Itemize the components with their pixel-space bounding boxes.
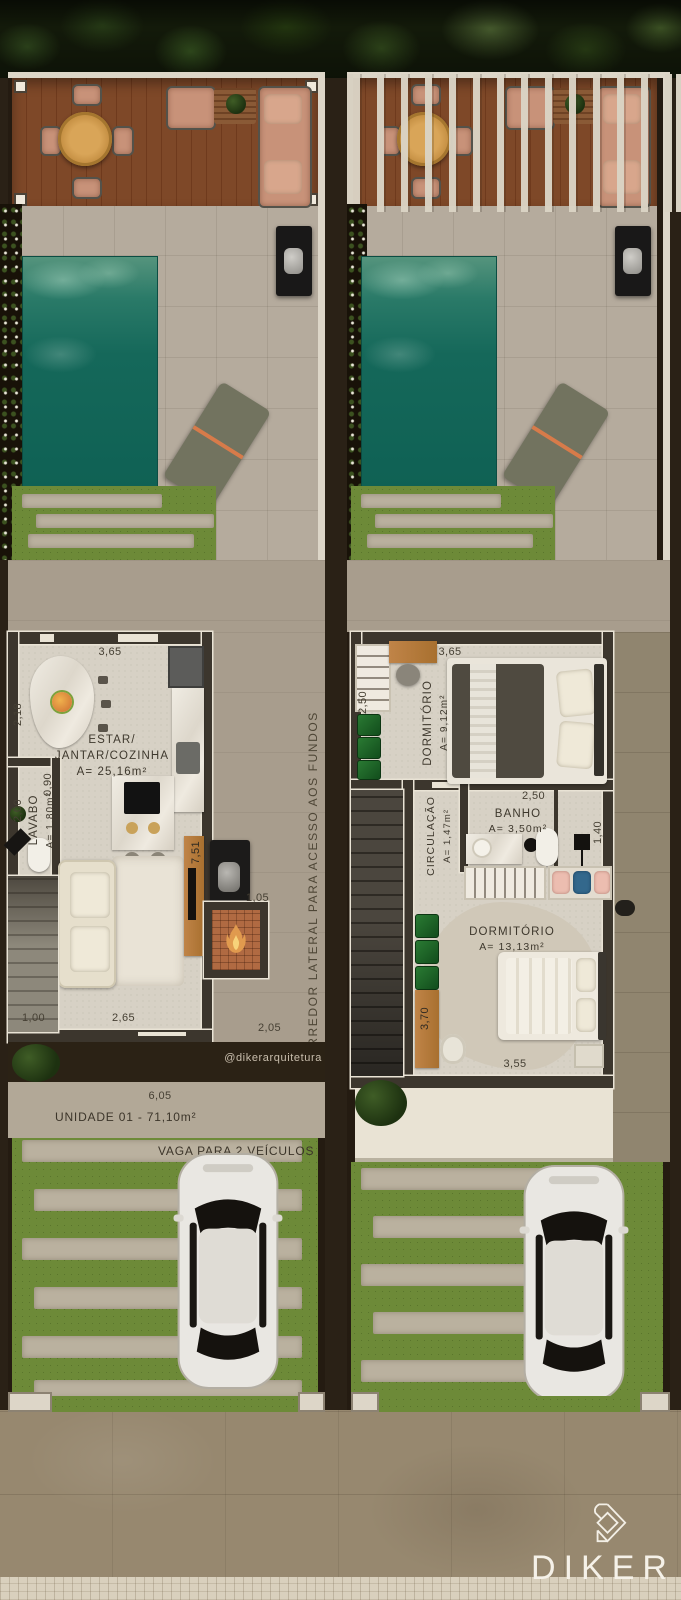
door-mat <box>615 900 635 916</box>
wardrobe-hangers <box>464 866 546 900</box>
unit-a-pool <box>22 256 158 490</box>
place-setting <box>148 822 160 834</box>
dim-bedroom2-bottom: 3,55 <box>485 1058 545 1070</box>
bedroom2-label: DORMITÓRIO A= 13,13m² <box>452 924 572 955</box>
bed-throw <box>470 664 496 778</box>
patio-chair <box>72 84 102 106</box>
tv-screen <box>188 868 196 920</box>
place-setting <box>126 822 138 834</box>
plant-box <box>415 914 439 938</box>
sofa-cushion <box>70 926 110 972</box>
room-area: A= 9,12m² <box>438 680 452 766</box>
room-name: DORMITÓRIO <box>452 924 572 940</box>
lawn-paver <box>22 494 162 508</box>
room-area: A= 1,47m² <box>441 796 454 876</box>
lawn-paver <box>375 514 553 528</box>
lavabo-label: LAVABO A= 1,80m² <box>26 792 58 848</box>
diker-wordmark: DIKER <box>528 1548 678 1588</box>
lounger-stripe <box>192 425 243 459</box>
right-site-border <box>670 72 681 1410</box>
dim-closet-side: 2,50 <box>357 682 369 714</box>
patio-chair <box>112 126 134 156</box>
dim-bathroom-top: 2,50 <box>522 790 545 802</box>
fence-post <box>351 1392 379 1412</box>
trees-band <box>0 0 681 78</box>
room-area: A= 3,50m² <box>458 822 578 837</box>
dining-chair <box>98 724 108 732</box>
front-bush <box>355 1080 407 1126</box>
unit-a-side-wall <box>318 72 325 562</box>
unit-b-rear-walk <box>347 560 670 632</box>
dining-chair <box>98 676 108 684</box>
fire-flame-icon <box>224 922 248 956</box>
unit-a-rear-walk <box>8 560 325 632</box>
dim-bottom-left: 1,00 <box>22 1012 45 1024</box>
pergola-slats <box>347 74 681 212</box>
front-bush <box>12 1044 60 1082</box>
car-top-view <box>172 1150 284 1392</box>
window-opening <box>40 634 54 642</box>
lawn-paver <box>28 534 194 548</box>
outdoor-sofa-seat <box>166 86 216 130</box>
bbq-kettle <box>284 248 303 274</box>
lounger-stripe <box>531 425 582 459</box>
unit-area-label: UNIDADE 01 - 71,10m² <box>55 1110 196 1124</box>
plant-box <box>357 737 381 759</box>
lawn-paver <box>367 534 533 548</box>
dim-bedroom2-left: 3,70 <box>419 996 431 1030</box>
grill-kettle <box>218 862 240 892</box>
plant-box <box>357 760 381 780</box>
door-opening <box>118 634 158 642</box>
plant-box <box>415 940 439 964</box>
desk-pouf <box>396 664 420 686</box>
wall <box>8 632 212 644</box>
nightstand <box>574 1044 604 1068</box>
watermark: @dikerarquitetura <box>208 1052 322 1064</box>
bbq-kettle <box>623 248 642 274</box>
dim-dining-side: 2,18 <box>12 686 24 726</box>
entry-door-leaf <box>138 1036 186 1040</box>
stairs <box>351 790 403 1076</box>
bedroom1-label: DORMITÓRIO A= 9,12m² <box>420 680 452 766</box>
fence-post <box>8 1392 52 1412</box>
plant-box <box>415 966 439 990</box>
folded-seat-pink <box>552 871 570 894</box>
lawn-verge <box>52 1396 298 1412</box>
room-name: DORMITÓRIO <box>420 680 436 766</box>
dim-top: 3,65 <box>60 646 160 658</box>
room-name: LAVABO <box>26 792 42 848</box>
bed-pillow <box>576 998 596 1032</box>
dining-chair <box>101 700 111 708</box>
dim-bottom-center: 2,65 <box>112 1012 135 1024</box>
sofa-cushion <box>264 160 302 194</box>
fence-post <box>640 1392 670 1412</box>
room-name: BANHO <box>458 806 578 822</box>
dim-bathroom-right: 1,40 <box>592 810 604 844</box>
dim-corridor-bottom: 2,05 <box>258 1022 281 1034</box>
fence-post <box>298 1392 325 1412</box>
dim-kitchen-side: 7,51 <box>190 828 202 864</box>
unit-divider-strip <box>325 72 347 1410</box>
bed-duvet <box>506 958 572 1034</box>
living-rug <box>112 856 184 986</box>
round-dining-table <box>58 112 112 166</box>
dim-front-width: 6,05 <box>130 1090 190 1102</box>
room-name-line1: ESTAR/ <box>37 732 187 748</box>
fridge <box>168 646 204 688</box>
lawn-paver <box>36 514 214 528</box>
dim-lavabo-height: 2,00 <box>12 788 24 822</box>
stairs <box>8 876 58 1032</box>
bed-pillow <box>556 668 597 718</box>
bath-sink <box>472 838 492 858</box>
car-top-view <box>518 1162 630 1404</box>
dim-top: 3,65 <box>420 646 480 658</box>
room-name-line2: JANTAR/COZINHA <box>37 748 187 764</box>
floor-plan-rendering: 3,65 2,18 ESTAR/ JANTAR/COZINHA A= 25,16… <box>0 0 681 1600</box>
corridor-label: CORREDOR LATERAL PARA ACESSO AOS FUNDOS <box>306 748 320 1068</box>
patio-chair <box>72 177 102 199</box>
bathroom-label: BANHO A= 3,50m² <box>458 806 578 837</box>
headboard <box>598 952 606 1040</box>
bed-pillow <box>576 958 596 992</box>
unit-b-pool <box>361 256 497 490</box>
room-area: A= 1,80m² <box>44 792 58 848</box>
dim-grill-nook: 1,05 <box>246 892 269 904</box>
bed-duvet <box>452 664 544 778</box>
wall <box>403 780 413 1088</box>
circulation-label: CIRCULAÇÃO A= 1,47m² <box>424 796 454 876</box>
accent-chair <box>440 1034 466 1064</box>
room-name: CIRCULAÇÃO <box>424 796 439 876</box>
lawn-paver <box>361 494 501 508</box>
potted-plant <box>226 94 246 114</box>
room-area: A= 13,13m² <box>452 940 572 955</box>
living-room-label: ESTAR/ JANTAR/COZINHA A= 25,16m² <box>37 732 187 780</box>
sofa-cushion <box>264 94 302 124</box>
plant-box <box>357 714 381 736</box>
deck-post <box>14 80 27 93</box>
bed-pillow <box>556 721 596 770</box>
folded-seat-pink <box>594 871 610 894</box>
cooktop <box>124 782 160 814</box>
table-centerpiece <box>52 692 72 712</box>
side-corridor-upper <box>613 632 670 1162</box>
lawn-verge <box>379 1396 640 1412</box>
folded-seat-blue <box>573 871 591 894</box>
sofa-cushion <box>70 872 110 918</box>
diker-logo-icon <box>583 1498 629 1546</box>
headboard <box>594 664 604 776</box>
room-area: A= 25,16m² <box>37 764 187 780</box>
